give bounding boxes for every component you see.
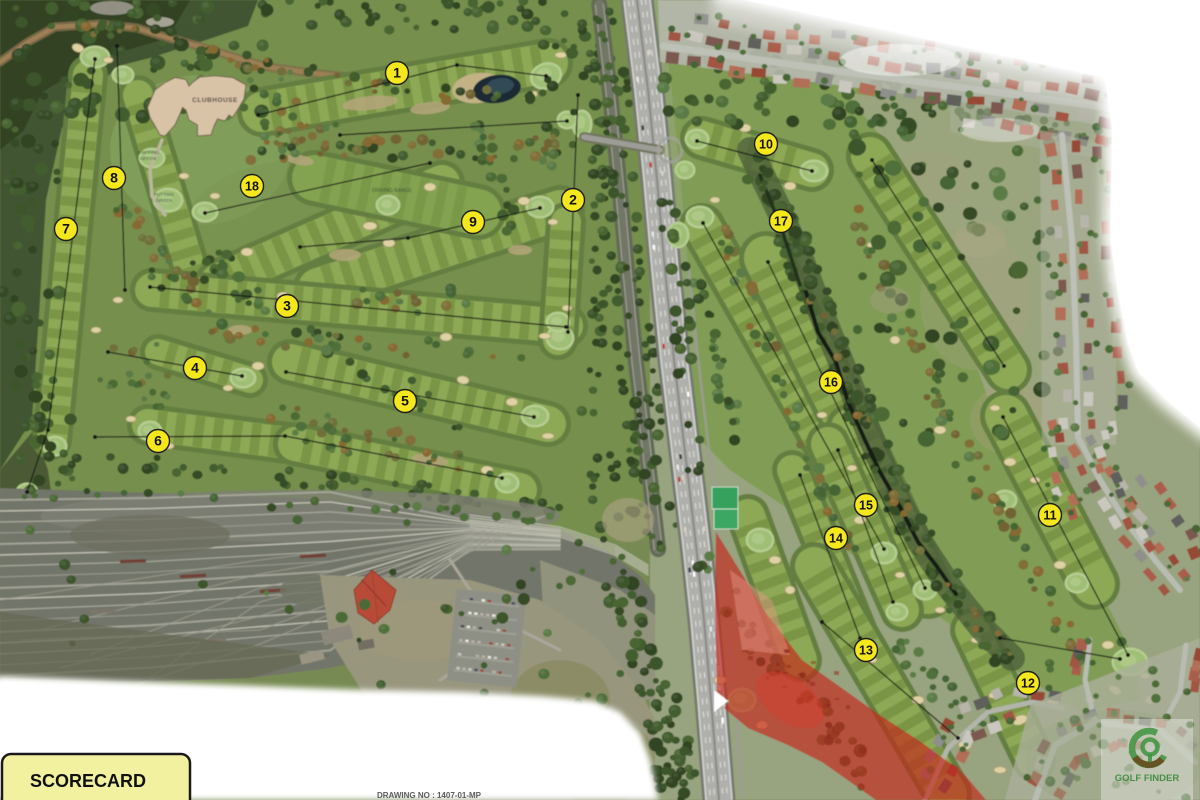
svg-text:3: 3	[283, 298, 291, 314]
svg-text:8: 8	[110, 170, 118, 186]
svg-text:1: 1	[393, 65, 401, 81]
svg-text:GOLF FINDER: GOLF FINDER	[1115, 773, 1180, 784]
svg-text:18: 18	[245, 180, 259, 194]
svg-text:16: 16	[824, 376, 838, 390]
svg-text:9: 9	[469, 214, 477, 230]
svg-text:4: 4	[191, 360, 199, 376]
svg-text:5: 5	[401, 393, 409, 409]
svg-text:SCORECARD: SCORECARD	[30, 771, 146, 791]
svg-text:12: 12	[1021, 677, 1035, 691]
svg-text:14: 14	[829, 532, 843, 546]
svg-text:DRAWING NO : 1407-01-MP: DRAWING NO : 1407-01-MP	[377, 791, 482, 800]
svg-text:7: 7	[62, 221, 70, 237]
svg-text:2: 2	[569, 192, 577, 208]
svg-text:11: 11	[1043, 509, 1056, 523]
svg-text:10: 10	[759, 138, 773, 152]
svg-text:13: 13	[859, 644, 873, 658]
svg-text:17: 17	[774, 215, 788, 229]
svg-text:15: 15	[859, 499, 873, 513]
svg-text:6: 6	[154, 433, 162, 449]
